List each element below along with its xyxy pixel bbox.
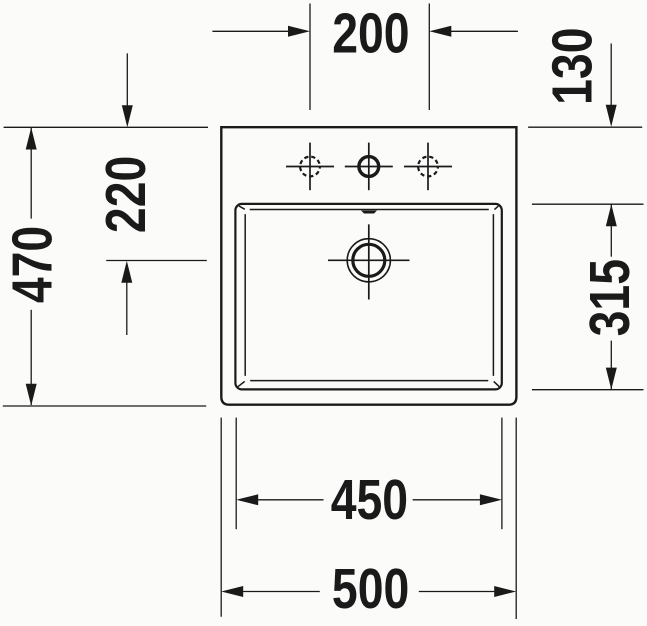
svg-text:200: 200 [332, 1, 409, 64]
svg-text:220: 220 [94, 156, 157, 233]
svg-text:470: 470 [0, 226, 63, 303]
svg-text:315: 315 [577, 259, 640, 336]
svg-text:450: 450 [331, 467, 408, 530]
svg-text:500: 500 [332, 557, 409, 620]
svg-text:130: 130 [540, 28, 603, 105]
